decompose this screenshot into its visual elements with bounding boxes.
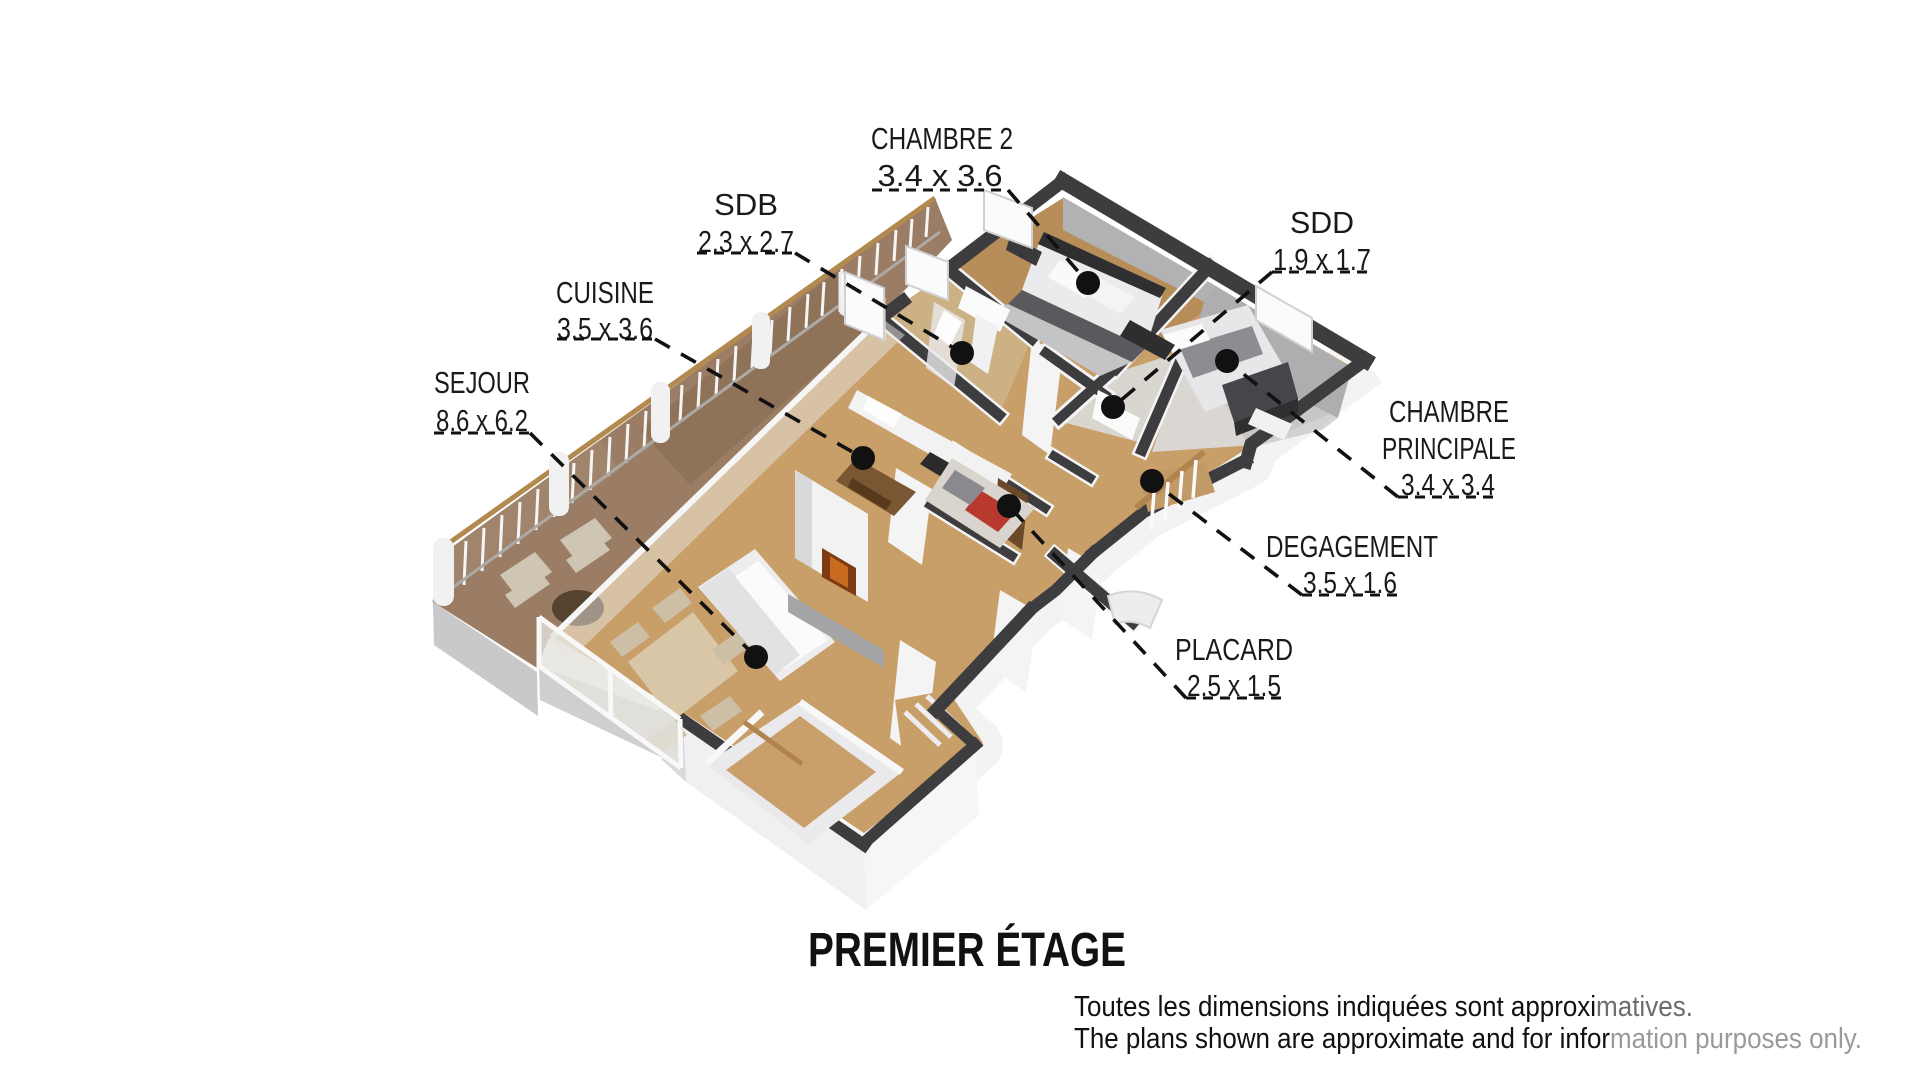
svg-text:SEJOUR: SEJOUR xyxy=(434,365,530,400)
svg-text:matives.: matives. xyxy=(1596,991,1693,1023)
svg-text:mation purposes only.: mation purposes only. xyxy=(1610,1023,1862,1055)
svg-text:CHAMBRE 2: CHAMBRE 2 xyxy=(871,121,1013,156)
svg-text:CUISINE: CUISINE xyxy=(556,275,654,310)
svg-text:The plans shown are approximat: The plans shown are approximate and for … xyxy=(1074,1023,1610,1055)
svg-text:PREMIER ÉTAGE: PREMIER ÉTAGE xyxy=(808,923,1126,977)
svg-text:CHAMBRE: CHAMBRE xyxy=(1389,394,1509,429)
svg-text:2.5 x 1.5: 2.5 x 1.5 xyxy=(1187,668,1281,703)
svg-text:1.9 x 1.7: 1.9 x 1.7 xyxy=(1273,242,1371,277)
svg-text:PRINCIPALE: PRINCIPALE xyxy=(1382,431,1516,466)
svg-text:SDD: SDD xyxy=(1290,205,1354,240)
svg-text:8.6 x 6.2: 8.6 x 6.2 xyxy=(436,403,528,438)
svg-text:PLACARD: PLACARD xyxy=(1175,632,1293,667)
svg-text:SDB: SDB xyxy=(714,187,778,222)
svg-text:3.5 x 1.6: 3.5 x 1.6 xyxy=(1303,565,1397,600)
svg-text:2.3 x 2.7: 2.3 x 2.7 xyxy=(698,224,794,259)
svg-text:3.5 x 3.6: 3.5 x 3.6 xyxy=(557,311,653,346)
svg-text:Toutes les dimensions indiquée: Toutes les dimensions indiquées sont app… xyxy=(1074,991,1596,1023)
svg-text:DEGAGEMENT: DEGAGEMENT xyxy=(1266,529,1438,564)
svg-text:3.4 x 3.6: 3.4 x 3.6 xyxy=(878,158,1003,193)
